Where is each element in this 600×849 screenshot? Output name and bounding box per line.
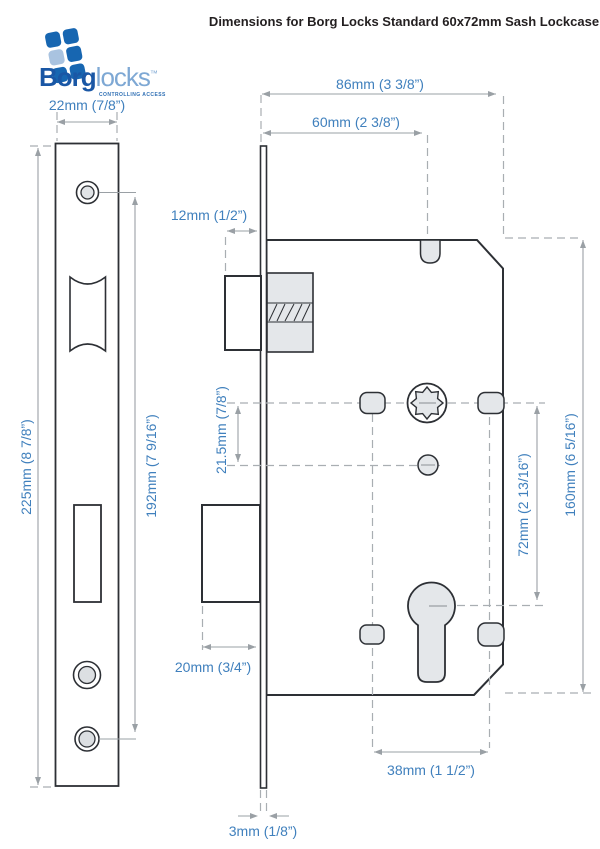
- lockcase-side-view: [202, 146, 503, 788]
- screw-hole-bottom-inner: [79, 731, 95, 747]
- faceplate-front-view: [56, 144, 119, 787]
- deadbolt-cutout: [74, 505, 101, 602]
- screw-hole-middle-inner: [79, 667, 96, 684]
- deadbolt-side-view: [202, 505, 260, 602]
- faceplate-side-strip: [261, 146, 267, 788]
- dim-faceplate-thickness: 3mm (1/8”): [229, 823, 297, 839]
- logo-brand-bold: Borg: [39, 62, 96, 92]
- dim-screw-hole-centres: 192mm (7 9/16”): [143, 414, 159, 517]
- dim-lock-centres: 72mm (2 13/16”): [515, 453, 531, 556]
- dim-faceplate-height: 225mm (8 7/8”): [18, 419, 34, 515]
- latch-bolt-head: [225, 276, 261, 350]
- dim-faceplate-width: 22mm (7/8”): [49, 97, 125, 113]
- fixing-slot-lower-right: [478, 623, 504, 646]
- handle-fixing-slot-upper-right: [478, 393, 504, 414]
- fixing-slot-lower-left: [360, 625, 384, 644]
- top-fixing-tab: [421, 240, 441, 263]
- dim-case-height: 160mm (6 5/16”): [562, 413, 578, 516]
- dim-fixing-hole-centres: 38mm (1 1/2”): [387, 762, 475, 778]
- screw-hole-top-inner: [81, 186, 94, 199]
- lockcase-technical-drawing: [0, 0, 600, 849]
- diagram-page: Borglocks™ CONTROLLING ACCESS Dimensions…: [0, 0, 600, 849]
- borg-locks-logo: Borglocks™ CONTROLLING ACCESS: [18, 12, 148, 90]
- dim-case-overall-width: 86mm (3 3/8”): [336, 76, 424, 92]
- dim-follower-to-hole: 21.5mm (7/8”): [213, 386, 229, 474]
- logo-trademark: ™: [150, 69, 158, 78]
- logo-wordmark: Borglocks™: [39, 62, 158, 93]
- dim-backset: 60mm (2 3/8”): [312, 114, 400, 130]
- logo-brand-light: locks: [96, 62, 150, 92]
- handle-fixing-slot-upper-left: [360, 393, 385, 414]
- faceplate-outline: [56, 144, 119, 787]
- latch-bolt-cutout: [70, 277, 106, 351]
- dim-deadbolt-throw: 20mm (3/4”): [175, 659, 251, 675]
- page-title: Dimensions for Borg Locks Standard 60x72…: [209, 14, 599, 29]
- dim-latch-projection: 12mm (1/2”): [171, 207, 247, 223]
